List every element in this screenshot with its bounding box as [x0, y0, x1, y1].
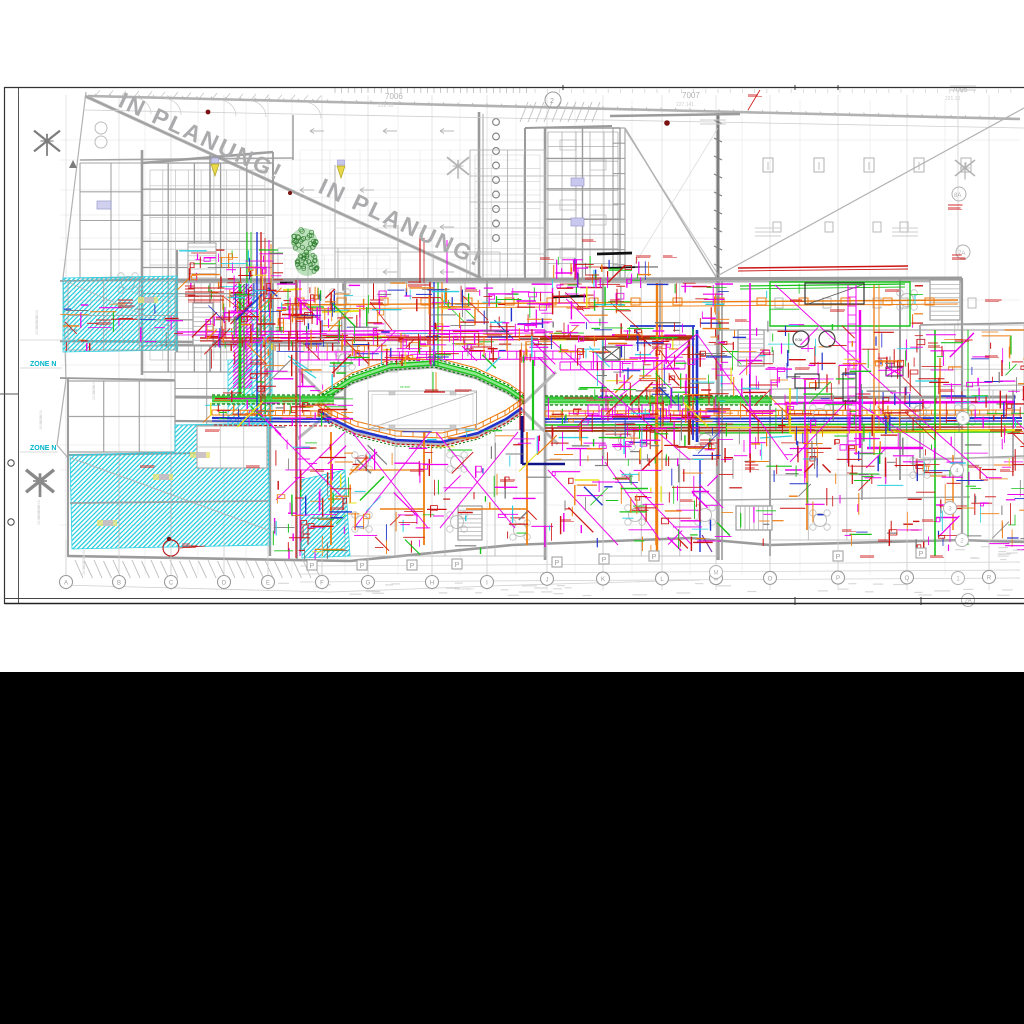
- svg-text:P: P: [410, 563, 415, 570]
- svg-text:M: M: [714, 571, 719, 577]
- svg-text:P: P: [310, 563, 315, 570]
- svg-text:P: P: [652, 554, 657, 561]
- svg-text:F: F: [320, 581, 324, 587]
- svg-text:7A: 7A: [958, 251, 965, 257]
- svg-text:ZONE N: ZONE N: [30, 361, 56, 368]
- svg-text:28.90: 28.90: [36, 514, 41, 525]
- svg-text:G: G: [366, 581, 371, 587]
- svg-text:KOA: KOA: [795, 338, 803, 342]
- svg-text:E: E: [266, 581, 270, 587]
- svg-text:28.90: 28.90: [34, 324, 39, 335]
- svg-text:8A: 8A: [954, 193, 961, 199]
- svg-text:7007: 7007: [682, 91, 700, 100]
- svg-text:227.141: 227.141: [676, 102, 694, 108]
- svg-text:P: P: [919, 551, 924, 558]
- svg-text:R: R: [987, 576, 992, 582]
- svg-text:B: B: [117, 581, 121, 587]
- svg-text:ZONE N: ZONE N: [30, 445, 56, 452]
- svg-text:P: P: [555, 560, 560, 567]
- svg-text:P: P: [836, 576, 840, 582]
- svg-text:P: P: [455, 562, 460, 569]
- svg-text:28.90: 28.90: [38, 419, 43, 430]
- svg-text:xx xxx: xx xxx: [400, 385, 410, 389]
- svg-text:P: P: [602, 557, 607, 564]
- svg-text:28.90: 28.90: [91, 389, 96, 400]
- svg-text:H: H: [430, 581, 434, 587]
- svg-text:K: K: [601, 577, 605, 583]
- svg-text:J: J: [546, 577, 549, 583]
- svg-text:A: A: [64, 581, 68, 587]
- svg-text:P: P: [836, 554, 841, 561]
- svg-text:7006: 7006: [385, 92, 403, 101]
- svg-text:D: D: [222, 581, 227, 587]
- svg-text:Durchfahrt: Durchfahrt: [455, 586, 475, 591]
- svg-text:O: O: [768, 576, 773, 582]
- svg-text:2: 2: [550, 98, 554, 105]
- svg-text:C: C: [169, 581, 174, 587]
- svg-text:P: P: [360, 563, 365, 570]
- svg-text:Q: Q: [905, 576, 910, 582]
- svg-text:226.10: 226.10: [378, 103, 394, 109]
- svg-text:28.90: 28.90: [81, 564, 86, 575]
- svg-text:xxxx: xxxx: [182, 541, 190, 546]
